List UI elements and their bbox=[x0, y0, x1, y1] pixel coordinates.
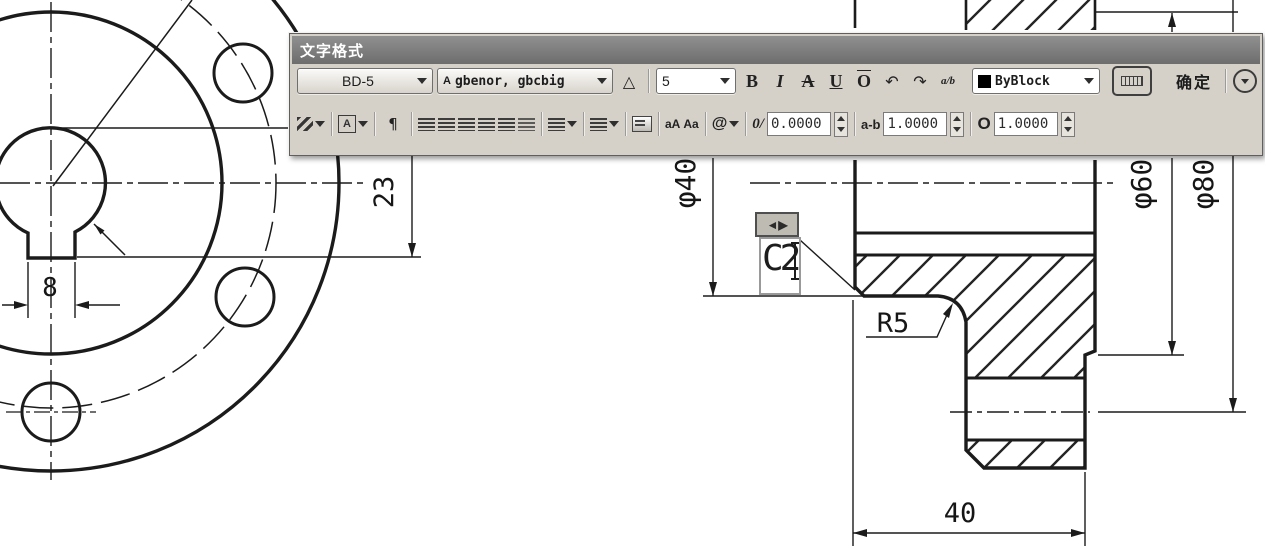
dim-arrowhead bbox=[1229, 398, 1237, 412]
dim-arrowhead bbox=[709, 282, 717, 296]
dim-dia-large-label: φ80 bbox=[1187, 159, 1220, 210]
paragraph-button[interactable]: ¶ bbox=[381, 111, 405, 137]
text-height-value: 5 bbox=[662, 73, 716, 89]
ok-button[interactable]: 确定 bbox=[1170, 69, 1218, 93]
separator bbox=[648, 69, 649, 93]
oblique-angle-spinner[interactable] bbox=[834, 112, 848, 137]
dim-arrowhead bbox=[1168, 13, 1176, 27]
chevron-down-icon bbox=[567, 121, 577, 127]
numbering-dropdown[interactable] bbox=[590, 118, 619, 131]
mtext-content[interactable]: C2 bbox=[762, 241, 797, 277]
separator bbox=[583, 112, 584, 136]
text-format-toolbar: 文字格式 BD-5 A gbenor, gbcbig △ 5 B I A U O… bbox=[289, 33, 1263, 156]
dim-dia-mid-label: φ60 bbox=[1125, 159, 1158, 210]
chevron-down-icon bbox=[597, 78, 607, 84]
align-distribute-button[interactable] bbox=[498, 118, 515, 131]
separator bbox=[625, 112, 626, 136]
oblique-angle-icon: 0/ bbox=[752, 116, 764, 133]
redo-icon[interactable]: ↷ bbox=[908, 68, 932, 94]
mtext-edit-frame[interactable]: C2 bbox=[759, 237, 801, 295]
lowercase-button[interactable]: Aa bbox=[683, 117, 698, 131]
text-cursor bbox=[794, 242, 796, 280]
color-dropdown[interactable]: ByBlock bbox=[972, 68, 1100, 94]
text-style-value: BD-5 bbox=[303, 73, 413, 89]
dim-length-label: 40 bbox=[944, 498, 977, 529]
strikethrough-button[interactable]: A bbox=[796, 68, 820, 94]
color-value: ByBlock bbox=[995, 74, 1080, 89]
text-style-dropdown[interactable]: BD-5 bbox=[297, 68, 433, 94]
dim-arrowhead bbox=[1071, 529, 1085, 537]
bore-with-keyway bbox=[0, 128, 105, 258]
align-justify-button[interactable] bbox=[478, 118, 495, 131]
overline-button[interactable]: O bbox=[852, 68, 876, 94]
dim-dia-small-label: φ40 bbox=[669, 158, 702, 209]
annotative-icon[interactable]: △ bbox=[617, 68, 641, 94]
insert-field-icon[interactable] bbox=[632, 116, 652, 132]
dim-keyway-width-label: 8 bbox=[42, 273, 58, 303]
chamfer-leader bbox=[800, 240, 855, 290]
line-spacing-dropdown[interactable] bbox=[548, 118, 577, 131]
ruler-toggle-button[interactable] bbox=[1112, 66, 1152, 96]
italic-button[interactable]: I bbox=[768, 68, 792, 94]
line-spacing-icon bbox=[548, 118, 565, 131]
dim-arrowhead bbox=[408, 243, 416, 257]
font-icon: A bbox=[443, 75, 451, 87]
separator bbox=[705, 112, 706, 136]
toolbar-title: 文字格式 bbox=[292, 36, 1260, 64]
dim-fillet-label: R5 bbox=[877, 308, 910, 339]
underline-button[interactable]: U bbox=[824, 68, 848, 94]
ruler-icon bbox=[1121, 76, 1143, 86]
width-factor-icon: O bbox=[977, 114, 990, 134]
chevron-down-icon bbox=[315, 121, 325, 127]
separator bbox=[411, 112, 412, 136]
undo-icon[interactable]: ↶ bbox=[880, 68, 904, 94]
text-height-dropdown[interactable]: 5 bbox=[656, 68, 736, 94]
line-spacing-button[interactable] bbox=[518, 118, 535, 131]
at-symbol-icon: @ bbox=[712, 115, 728, 133]
separator bbox=[541, 112, 542, 136]
chevron-down-icon bbox=[1084, 78, 1094, 84]
toolbar-row-1: BD-5 A gbenor, gbcbig △ 5 B I A U O ↶ ↷ … bbox=[292, 64, 1260, 98]
tracking-spinner[interactable] bbox=[950, 112, 964, 137]
bolt-hole bbox=[214, 44, 272, 102]
leader-arrowhead bbox=[943, 303, 953, 318]
hatch-region bbox=[966, 440, 1085, 468]
symbol-dropdown[interactable]: @ bbox=[712, 115, 740, 133]
tracking-icon: a-b bbox=[861, 117, 881, 132]
separator bbox=[854, 112, 855, 136]
dim-arrowhead bbox=[853, 529, 867, 537]
separator bbox=[331, 112, 332, 136]
separator bbox=[374, 112, 375, 136]
separator bbox=[745, 112, 746, 136]
stack-fraction-icon[interactable]: a/b bbox=[936, 68, 960, 94]
font-dropdown[interactable]: A gbenor, gbcbig bbox=[437, 68, 613, 94]
mtext-justify-icon: A bbox=[338, 115, 356, 133]
columns-dropdown[interactable] bbox=[297, 117, 325, 131]
oblique-angle-field[interactable]: 0.0000 bbox=[767, 112, 831, 136]
font-value: gbenor, gbcbig bbox=[455, 74, 593, 89]
chevron-down-icon bbox=[729, 121, 739, 127]
mtext-grip-handle[interactable]: ◄▶ bbox=[755, 212, 799, 237]
align-left-button[interactable] bbox=[418, 118, 435, 131]
color-swatch-icon bbox=[978, 75, 991, 88]
separator bbox=[1225, 69, 1226, 93]
hatch-region bbox=[966, 0, 1095, 30]
toolbar-row-2: A ¶ aA Aa @ 0/ 0.0000 bbox=[292, 98, 1260, 150]
numbering-icon bbox=[590, 118, 607, 131]
columns-icon bbox=[297, 117, 313, 131]
chevron-down-icon bbox=[417, 78, 427, 84]
separator bbox=[970, 112, 971, 136]
bold-button[interactable]: B bbox=[740, 68, 764, 94]
bolt-circle bbox=[0, 0, 276, 408]
chevron-down-icon bbox=[1241, 79, 1249, 84]
width-factor-field[interactable]: 1.0000 bbox=[994, 112, 1058, 136]
chevron-down-icon bbox=[358, 121, 368, 127]
tracking-field[interactable]: 1.0000 bbox=[883, 112, 947, 136]
options-button[interactable] bbox=[1233, 69, 1257, 93]
dim-arrowhead bbox=[14, 301, 28, 309]
separator bbox=[658, 112, 659, 136]
dim-keyway-depth-label: 23 bbox=[369, 176, 400, 209]
uppercase-button[interactable]: aA bbox=[665, 117, 680, 131]
width-factor-spinner[interactable] bbox=[1061, 112, 1075, 137]
align-right-button[interactable] bbox=[458, 118, 475, 131]
dim-arrowhead bbox=[75, 301, 89, 309]
dim-arrowhead bbox=[1168, 341, 1176, 355]
justification-dropdown[interactable]: A bbox=[338, 115, 368, 133]
chevron-down-icon bbox=[609, 121, 619, 127]
chevron-down-icon bbox=[720, 78, 730, 84]
align-center-button[interactable] bbox=[438, 118, 455, 131]
